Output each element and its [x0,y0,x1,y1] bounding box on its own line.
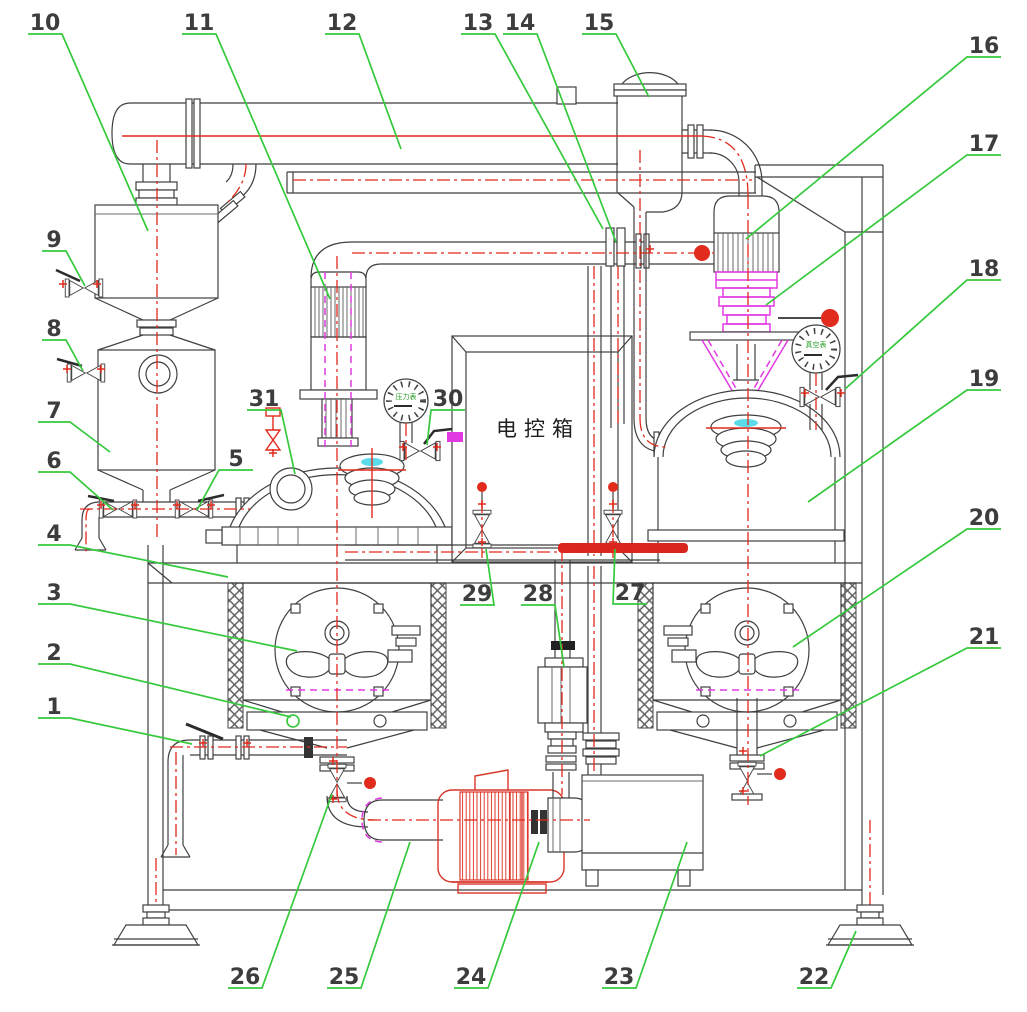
callout-5: 5 [228,447,243,472]
vacuum-gauge-label: 真空表 [806,340,827,349]
vessel-seal-coil [706,415,786,467]
callout-27: 27 [615,581,646,606]
callout-23: 23 [604,965,635,990]
callout-26-leader [228,794,332,988]
right-vessel [648,390,844,563]
callout-18: 18 [969,257,1000,282]
pressure-gauge-label: 压力表 [396,392,417,401]
callout-30: 30 [433,387,464,412]
pump-motor [438,770,564,893]
callout-17: 17 [969,132,1000,157]
callout-6: 6 [46,449,61,474]
callout-8-leader [42,340,83,371]
callout-28: 28 [523,582,554,607]
callout-13: 13 [463,11,494,36]
callout-7: 7 [46,399,61,424]
condenser [112,87,618,168]
valve-31 [266,408,280,450]
control-box: 电控箱 [452,336,632,562]
callout-8: 8 [46,317,61,342]
callout-3-leader [38,604,297,651]
highlight-bar [558,543,688,553]
pump-box-23 [582,775,703,886]
callout-21: 21 [969,625,1000,650]
callout-22: 22 [799,965,830,990]
diagram-page: 电控箱 真空表 [0,0,1027,1012]
callout-25: 25 [329,965,360,990]
callout-16-leader [746,57,1001,239]
top-canister [614,73,686,212]
valve-8 [67,364,105,382]
finned-condenser-column [714,196,779,272]
callout-14: 14 [505,11,536,36]
callout-4-leader [38,545,228,577]
stirrer-column [300,272,377,448]
schematic-canvas: 电控箱 真空表 [0,0,1027,1012]
callout-3: 3 [46,581,61,606]
callout-10-leader [28,34,148,231]
callout-19: 19 [969,367,1000,392]
callout-12-leader [325,34,401,149]
callout-20: 20 [969,506,1000,531]
callout-31: 31 [249,387,280,412]
callout-15: 15 [584,11,615,36]
reactor-sight-glass [270,468,312,510]
callout-9: 9 [46,228,61,253]
lower-header-tube [287,172,756,193]
valve-knob [821,309,839,327]
callout-10: 10 [30,11,61,36]
callout-24: 24 [456,965,487,990]
left-foot [112,905,200,945]
valve-26 [320,757,376,827]
callout-12: 12 [327,11,358,36]
callout-29: 29 [462,582,493,607]
right-foot [826,905,914,945]
callout-26: 26 [230,965,261,990]
callout-11: 11 [184,11,215,36]
callout-2-leader [38,664,291,717]
callout-1-leader [38,718,192,744]
sight-glass [139,355,177,393]
callout-4: 4 [46,522,61,547]
callout-13-leader [461,34,603,229]
callout-14-leader [503,34,616,242]
right-tank-drain [730,698,786,800]
control-box-label: 电控箱 [496,417,580,441]
callout-2: 2 [46,641,61,666]
callout-16: 16 [969,34,1000,59]
callout-1: 1 [46,695,61,720]
